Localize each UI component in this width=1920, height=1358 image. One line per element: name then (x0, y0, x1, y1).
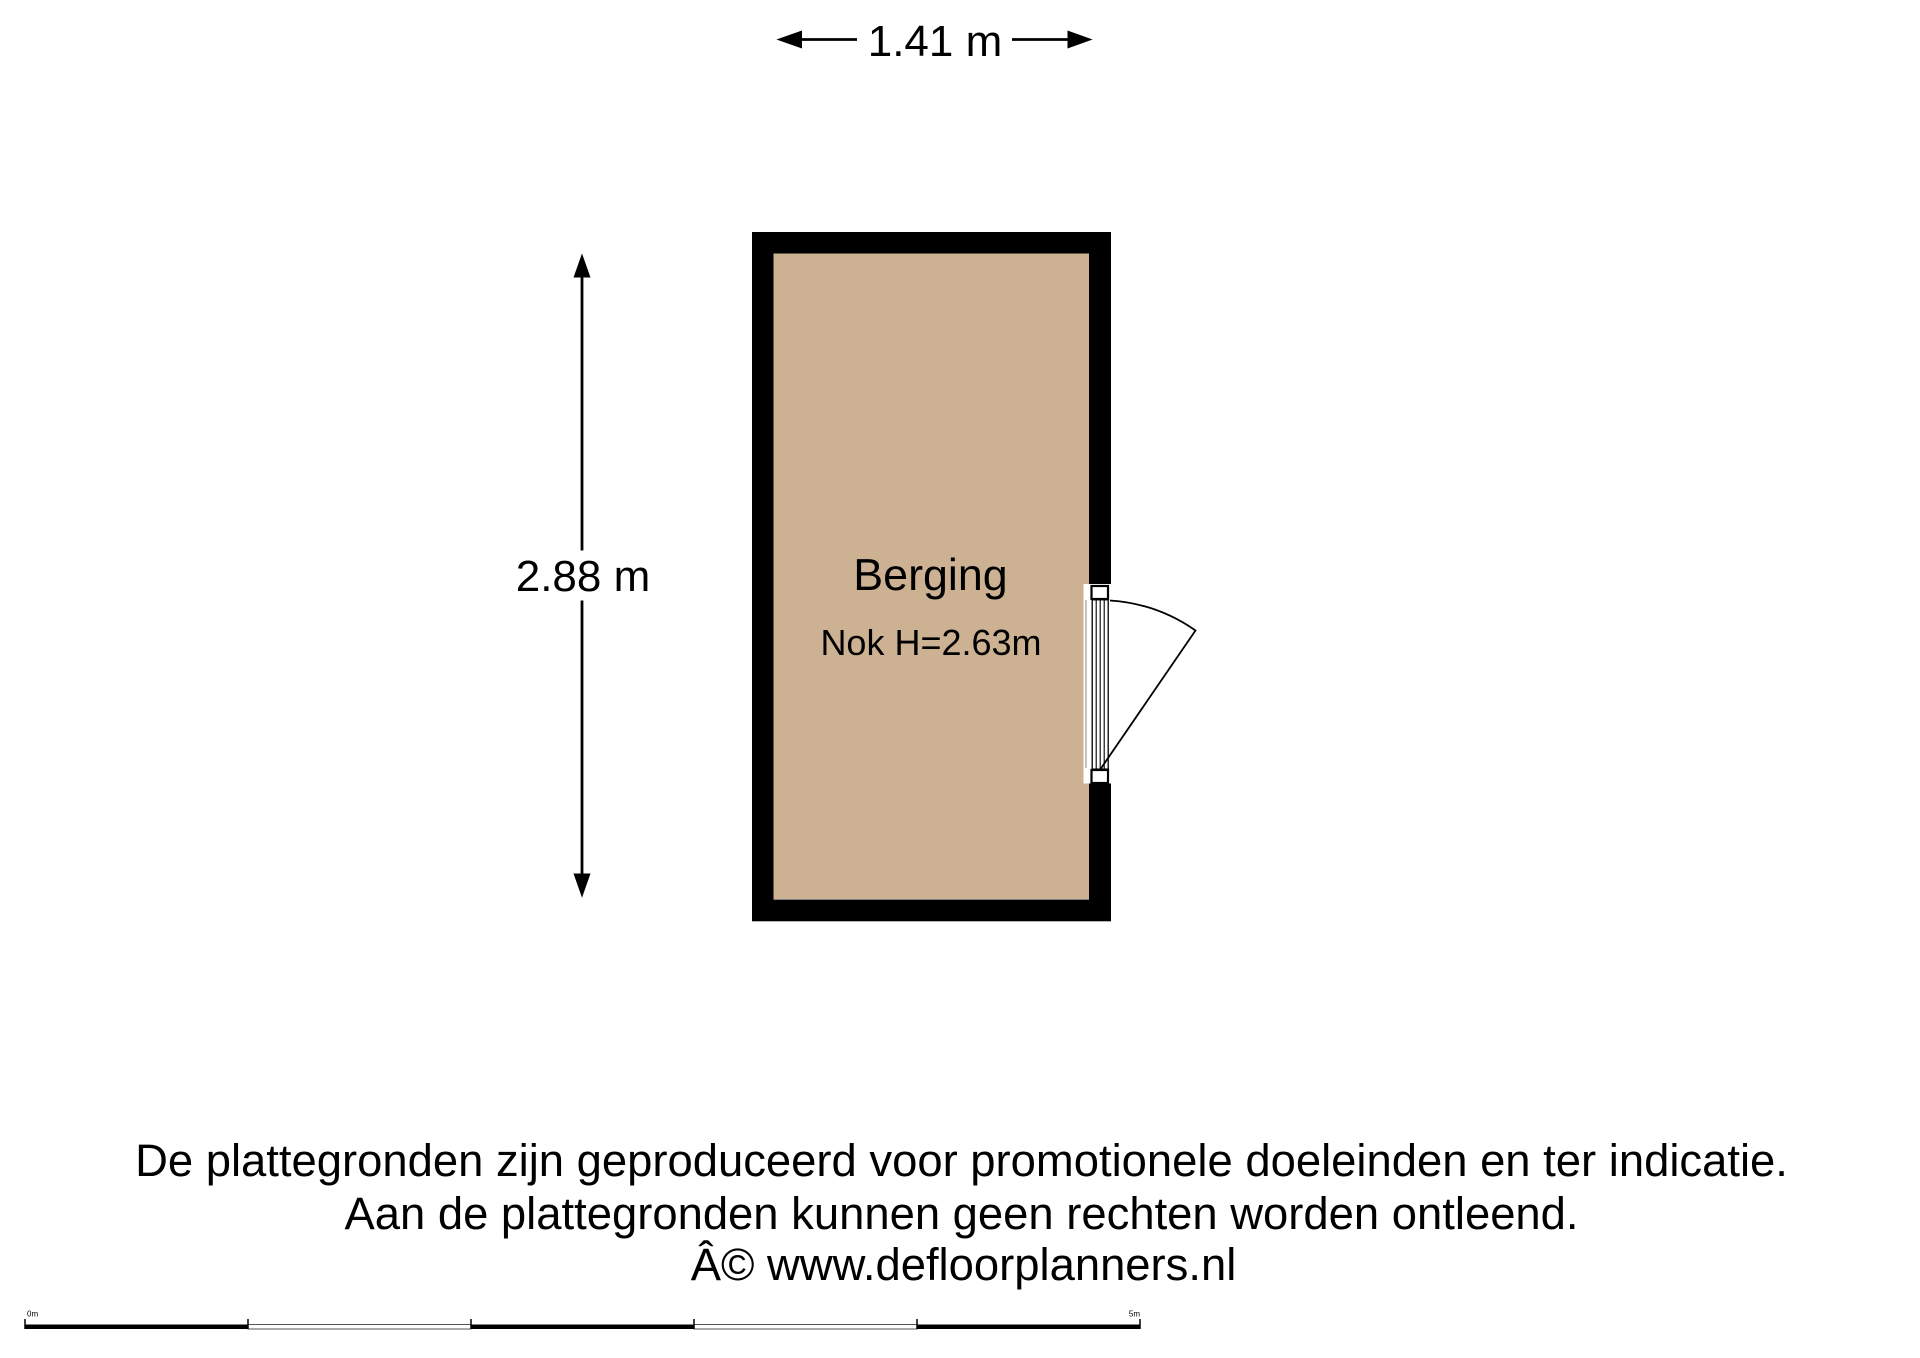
svg-text:Aan de plattegronden kunnen ge: Aan de plattegronden kunnen geen rechten… (344, 1188, 1578, 1239)
svg-text:De plattegronden zijn geproduc: De plattegronden zijn geproduceerd voor … (135, 1135, 1788, 1186)
svg-text:5m: 5m (1129, 1310, 1140, 1319)
svg-text:1.41 m: 1.41 m (868, 17, 1003, 66)
svg-text:Nok H=2.63m: Nok H=2.63m (820, 622, 1041, 663)
svg-text:Â© www.defloorplanners.nl: Â© www.defloorplanners.nl (691, 1239, 1237, 1290)
svg-text:2.88 m: 2.88 m (516, 552, 651, 601)
svg-text:Berging: Berging (853, 550, 1007, 600)
svg-text:0m: 0m (27, 1310, 38, 1319)
